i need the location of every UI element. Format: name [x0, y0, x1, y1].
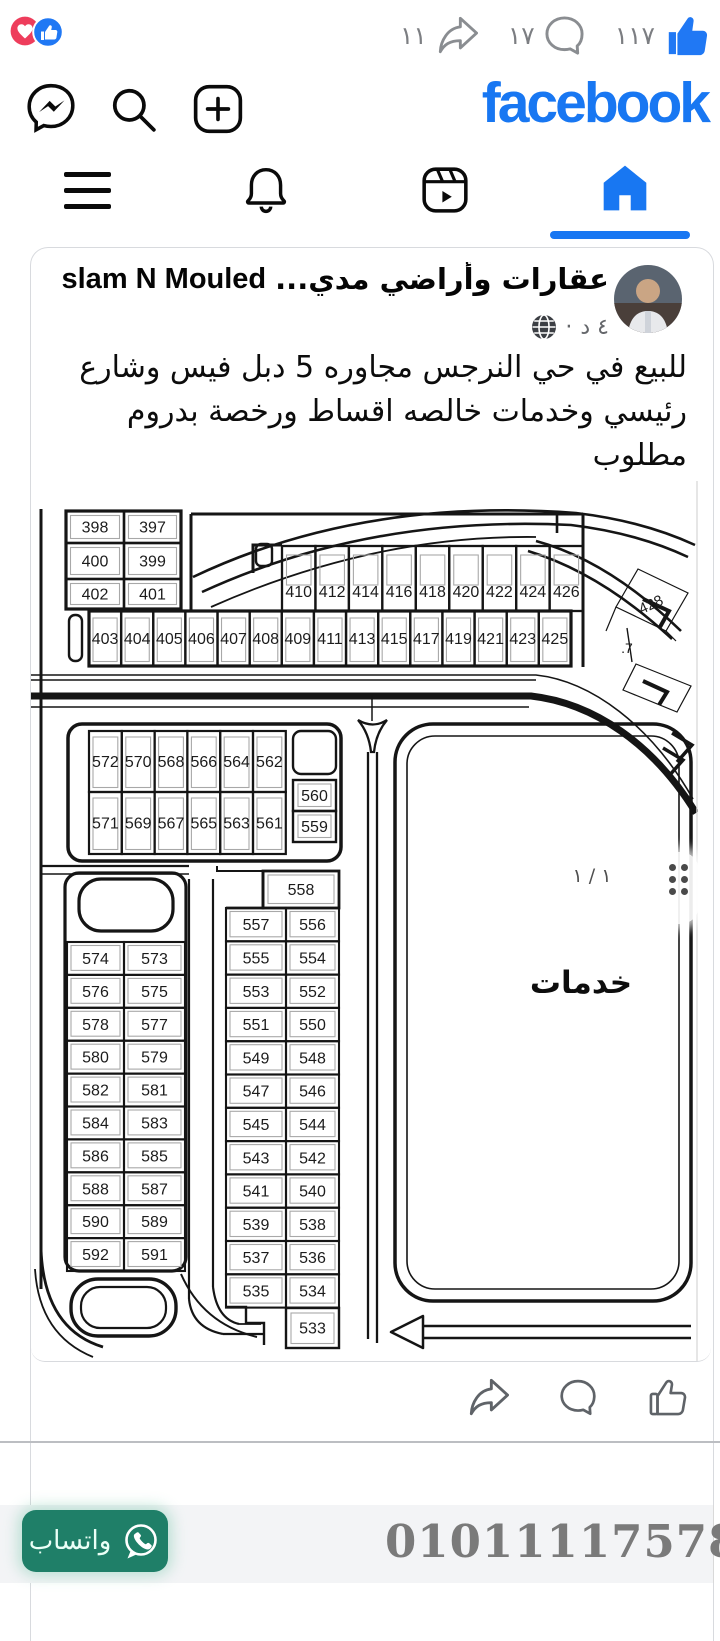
engagement-metrics: ١١ ١٧ ١١٧	[400, 12, 710, 58]
whatsapp-label: واتساب	[29, 1526, 112, 1556]
svg-text:555: 555	[243, 950, 270, 967]
svg-text:420: 420	[453, 584, 480, 601]
facebook-header: facebook	[0, 76, 720, 140]
svg-text:567: 567	[158, 816, 185, 833]
contact-bar: واتساب 01011117578	[0, 1505, 714, 1583]
comment-icon	[544, 14, 585, 56]
section-divider	[0, 1441, 720, 1443]
search-icon[interactable]	[108, 84, 158, 134]
svg-text:578: 578	[82, 1017, 109, 1034]
svg-text:588: 588	[82, 1181, 109, 1198]
svg-text:573: 573	[141, 951, 168, 968]
share-metric[interactable]: ١١	[400, 14, 478, 56]
svg-text:554: 554	[299, 950, 326, 967]
post-meta-row: ٤ د ·	[531, 314, 609, 340]
svg-text:556: 556	[299, 917, 326, 934]
svg-text:545: 545	[243, 1117, 270, 1134]
svg-text:416: 416	[386, 584, 413, 601]
svg-text:571: 571	[92, 816, 119, 833]
svg-text:582: 582	[82, 1083, 109, 1100]
svg-text:539: 539	[243, 1217, 270, 1234]
svg-text:552: 552	[299, 984, 326, 1001]
svg-text:419: 419	[445, 631, 472, 648]
svg-text:553: 553	[243, 984, 270, 1001]
photo-menu[interactable]	[643, 852, 699, 924]
svg-text:535: 535	[243, 1283, 270, 1300]
svg-text:549: 549	[243, 1050, 270, 1067]
comment-action-icon[interactable]	[559, 1377, 597, 1417]
tab-video[interactable]	[420, 164, 470, 216]
svg-text:405: 405	[156, 631, 183, 648]
svg-text:548: 548	[299, 1050, 326, 1067]
facebook-logo: facebook	[482, 70, 708, 136]
like-count: ١١٧	[615, 21, 655, 50]
svg-text:533: 533	[299, 1321, 326, 1338]
svg-text:402: 402	[82, 587, 109, 604]
comment-count: ١٧	[508, 21, 535, 50]
whatsapp-icon	[121, 1521, 161, 1561]
svg-text:401: 401	[139, 587, 166, 604]
tab-home[interactable]	[599, 162, 651, 214]
svg-text:572: 572	[92, 754, 119, 771]
svg-text:563: 563	[223, 816, 250, 833]
nav-bar	[0, 158, 720, 240]
svg-text:587: 587	[141, 1181, 168, 1198]
svg-text:546: 546	[299, 1084, 326, 1101]
svg-text:583: 583	[141, 1115, 168, 1132]
tab-notifications[interactable]	[241, 164, 291, 216]
svg-text:542: 542	[299, 1150, 326, 1167]
svg-text:544: 544	[299, 1117, 326, 1134]
svg-text:411: 411	[317, 631, 343, 648]
svg-text:399: 399	[139, 554, 166, 571]
svg-text:576: 576	[82, 984, 109, 1001]
svg-text:560: 560	[301, 788, 328, 805]
contact-phone-number: 01011117578	[385, 1515, 675, 1568]
tab-menu[interactable]	[64, 172, 111, 209]
post-text-line: رئيسي وخدمات خالصه اقساط ورخصة بدروم مطل…	[57, 390, 687, 478]
svg-text:580: 580	[82, 1050, 109, 1067]
svg-text:406: 406	[188, 631, 215, 648]
group-name[interactable]: عقارات وأراضي مدي...	[275, 262, 609, 296]
like-action-icon[interactable]	[647, 1376, 689, 1418]
meta-separator: ·	[565, 315, 572, 340]
svg-text:557: 557	[243, 917, 270, 934]
globe-icon	[531, 314, 557, 340]
svg-text:536: 536	[299, 1250, 326, 1267]
messenger-icon[interactable]	[24, 80, 78, 136]
svg-text:565: 565	[190, 816, 217, 833]
svg-text:.7: .7	[621, 640, 633, 656]
like-reaction-icon	[32, 16, 64, 48]
svg-text:569: 569	[125, 816, 152, 833]
svg-text:413: 413	[349, 631, 376, 648]
svg-text:559: 559	[301, 819, 328, 836]
svg-text:410: 410	[285, 584, 312, 601]
plot-map: 3983974003994024014034044054064074084094…	[31, 481, 698, 1361]
svg-text:590: 590	[82, 1214, 109, 1231]
whatsapp-button[interactable]: واتساب	[22, 1510, 168, 1572]
bell-icon	[248, 170, 285, 203]
svg-text:424: 424	[519, 584, 546, 601]
svg-text:543: 543	[243, 1150, 270, 1167]
svg-text:534: 534	[299, 1283, 326, 1300]
svg-text:568: 568	[158, 754, 185, 771]
svg-text:558: 558	[288, 882, 315, 899]
svg-text:574: 574	[82, 951, 109, 968]
svg-text:537: 537	[243, 1250, 270, 1267]
svg-text:414: 414	[352, 584, 379, 601]
svg-text:562: 562	[256, 754, 283, 771]
svg-text:421: 421	[477, 631, 504, 648]
svg-text:579: 579	[141, 1050, 168, 1067]
share-icon	[436, 14, 478, 56]
svg-text:خدمات: خدمات	[530, 965, 632, 1001]
photo-page-indicator: ١ / ١	[557, 845, 627, 907]
timestamp: ٤ د	[580, 315, 609, 340]
active-tab-indicator	[550, 231, 690, 239]
svg-text:417: 417	[413, 631, 440, 648]
svg-text:589: 589	[141, 1214, 168, 1231]
svg-text:397: 397	[139, 520, 166, 537]
svg-text:584: 584	[82, 1115, 109, 1132]
svg-text:561: 561	[256, 816, 283, 833]
svg-text:425: 425	[542, 631, 569, 648]
svg-text:409: 409	[284, 631, 311, 648]
post-photo[interactable]: 3983974003994024014034044054064074084094…	[31, 481, 711, 1362]
create-post-icon[interactable]	[192, 83, 244, 135]
svg-text:585: 585	[141, 1148, 168, 1165]
svg-text:422: 422	[486, 584, 513, 601]
post-card: عقارات وأراضي مدي... Eslam N Mouled ◄ ٤ …	[30, 247, 714, 1641]
svg-text:577: 577	[141, 1017, 168, 1034]
svg-text:540: 540	[299, 1184, 326, 1201]
svg-text:586: 586	[82, 1148, 109, 1165]
svg-text:398: 398	[82, 520, 109, 537]
svg-text:415: 415	[381, 631, 408, 648]
svg-text:408: 408	[252, 631, 279, 648]
svg-text:407: 407	[220, 631, 247, 648]
svg-text:550: 550	[299, 1017, 326, 1034]
share-count: ١١	[400, 21, 427, 50]
post-text-line: للبيع في حي النرجس مجاوره 5 دبل فيس وشار…	[57, 346, 687, 390]
svg-text:538: 538	[299, 1217, 326, 1234]
dots-menu-icon	[669, 864, 688, 895]
svg-text:400: 400	[82, 554, 109, 571]
svg-text:566: 566	[190, 754, 217, 771]
reaction-summary[interactable]	[10, 16, 72, 50]
svg-text:564: 564	[223, 754, 250, 771]
reels-icon	[424, 169, 466, 211]
avatar[interactable]	[614, 265, 682, 333]
post-author-row[interactable]: عقارات وأراضي مدي... Eslam N Mouled ◄	[61, 262, 609, 296]
svg-text:423: 423	[509, 631, 536, 648]
share-action-icon[interactable]	[467, 1376, 509, 1418]
svg-text:581: 581	[141, 1083, 168, 1100]
like-metric[interactable]: ١١٧	[615, 12, 710, 58]
svg-text:404: 404	[124, 631, 151, 648]
svg-text:547: 547	[243, 1084, 270, 1101]
svg-text:570: 570	[125, 754, 152, 771]
post-actions	[467, 1376, 689, 1418]
svg-text:541: 541	[243, 1184, 270, 1201]
hamburger-icon	[64, 172, 111, 209]
like-filled-icon	[664, 12, 710, 58]
svg-text:412: 412	[319, 584, 346, 601]
author-name[interactable]: Eslam N Mouled	[61, 263, 266, 296]
svg-text:592: 592	[82, 1247, 109, 1264]
svg-text:418: 418	[419, 584, 446, 601]
svg-text:591: 591	[141, 1247, 168, 1264]
svg-text:575: 575	[141, 984, 168, 1001]
svg-text:403: 403	[92, 631, 119, 648]
svg-text:426: 426	[553, 584, 580, 601]
home-icon	[604, 166, 647, 211]
svg-text:551: 551	[243, 1017, 270, 1034]
comment-metric[interactable]: ١٧	[508, 14, 585, 56]
